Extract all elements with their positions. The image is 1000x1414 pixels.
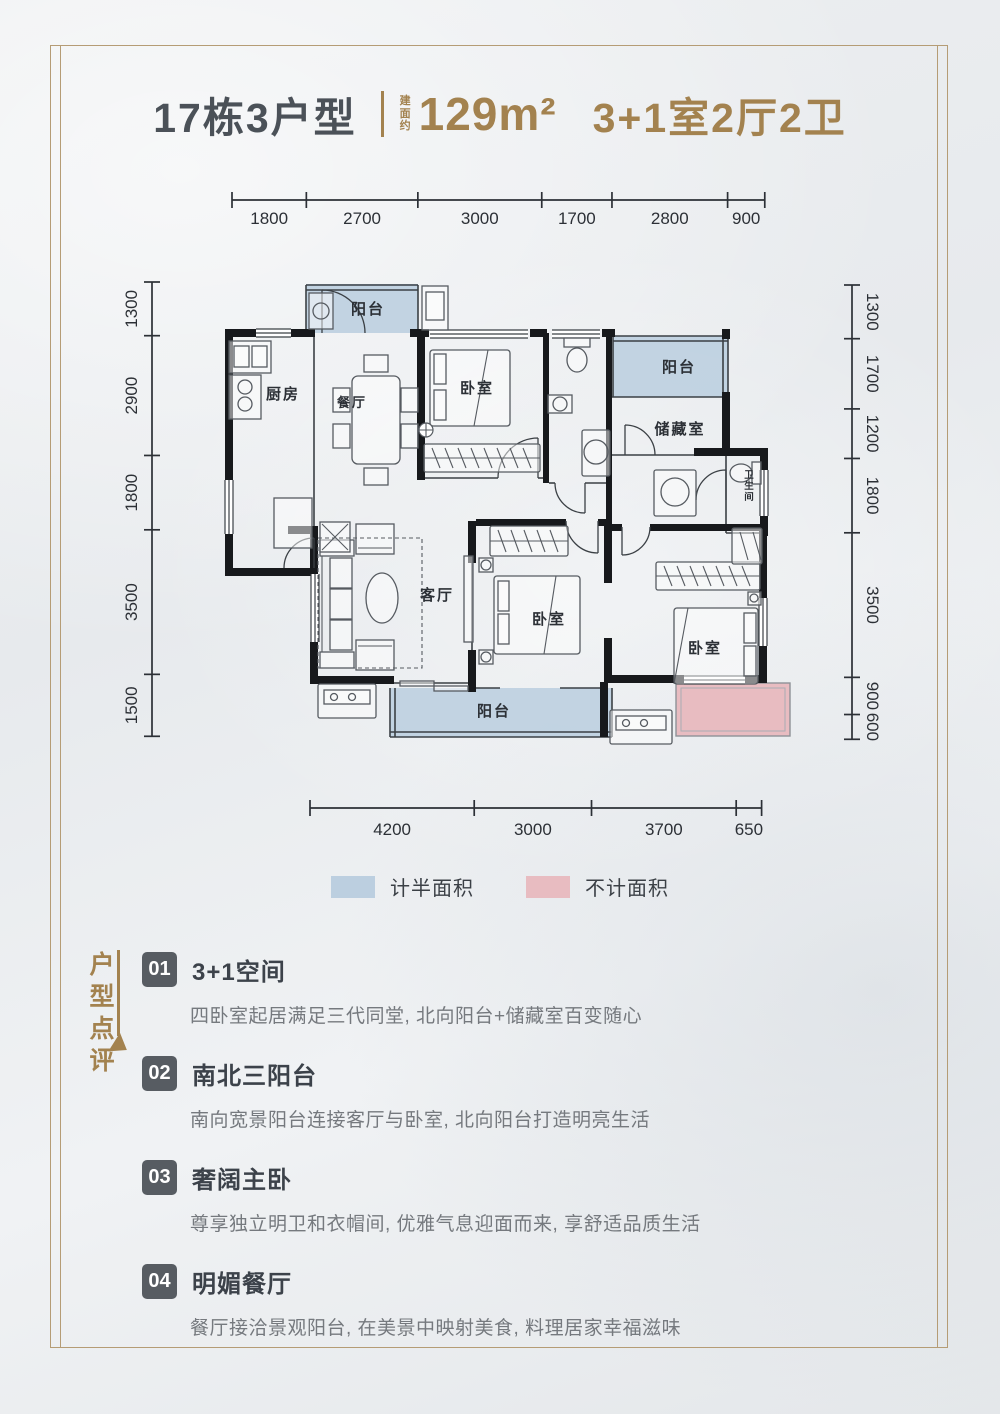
room-label-balcony_s: 阳台 (477, 702, 511, 720)
dim-label-right: 1800 (863, 477, 882, 515)
dim-label-top: 3000 (461, 209, 499, 228)
room-label-bath_e: 间 (744, 491, 754, 503)
dim-label-bottom: 650 (735, 820, 763, 839)
dim-label-right: 3500 (863, 586, 882, 624)
dim-label-top: 2700 (343, 209, 381, 228)
dim-label-right: 900 (863, 682, 882, 710)
item-title: 明媚餐厅 (192, 1264, 292, 1299)
title-bar: 17栋3户型 建面约 129m² 3+1室2厅2卫 (0, 84, 1000, 144)
dim-label-left: 1500 (122, 686, 141, 724)
room-label-balcony_n: 阳台 (351, 300, 385, 318)
review-item: 04 明媚餐厅 餐厅接洽景观阳台, 在美景中映射美食, 料理居家幸福滋味 (142, 1263, 862, 1340)
excluded-area-label: 不计面积 (585, 872, 669, 901)
room-label-living: 客厅 (419, 586, 454, 604)
item-title: 奢阔主卧 (192, 1160, 292, 1195)
floor-plan: 阳台厨房餐厅卧室阳台储藏室卫生间客厅卧室卧室阳台1800270030001700… (0, 170, 1000, 860)
area-value: 129m² (419, 87, 557, 141)
dim-label-left: 3500 (122, 583, 141, 621)
review-item: 03 奢阔主卧 尊享独立明卫和衣帽间, 优雅气息迎面而来, 享舒适品质生活 (142, 1159, 862, 1236)
dim-label-right: 600 (863, 713, 882, 741)
item-title: 南北三阳台 (192, 1056, 317, 1091)
dim-label-bottom: 3000 (514, 820, 552, 839)
dim-label-right: 1300 (863, 293, 882, 331)
title-divider (381, 91, 384, 137)
legend-item-excluded-area: 不计面积 (526, 872, 669, 901)
excluded-area-swatch (526, 876, 570, 898)
room-count: 3+1室2厅2卫 (593, 84, 847, 144)
dim-label-left: 2900 (122, 377, 141, 415)
item-number-badge: 02 (142, 1056, 177, 1091)
dim-label-bottom: 3700 (645, 820, 683, 839)
dim-label-top: 1800 (250, 209, 288, 228)
item-title: 3+1空间 (192, 952, 286, 987)
review-item: 01 3+1空间 四卧室起居满足三代同堂, 北向阳台+储藏室百变随心 (142, 951, 862, 1028)
dim-label-top: 2800 (651, 209, 689, 228)
flyer-page: 17栋3户型 建面约 129m² 3+1室2厅2卫 阳台厨房餐厅卧室阳台储藏室卫… (0, 0, 1000, 1414)
review-accent-line (117, 950, 120, 1036)
half-area-label: 计半面积 (390, 872, 474, 901)
item-description: 四卧室起居满足三代同堂, 北向阳台+储藏室百变随心 (190, 1001, 862, 1028)
dim-label-top: 1700 (558, 209, 596, 228)
room-label-bedroom_m: 卧室 (688, 639, 722, 657)
room-label-bedroom_s: 卧室 (532, 610, 566, 628)
room-label-bedroom_n: 卧室 (460, 379, 494, 397)
dim-label-bottom: 4200 (373, 820, 411, 839)
review-section-title: 户型点评 (82, 951, 118, 1079)
item-description: 餐厅接洽景观阳台, 在美景中映射美食, 料理居家幸福滋味 (190, 1313, 862, 1340)
unit-title: 17栋3户型 (153, 84, 356, 144)
dim-label-top: 900 (732, 209, 760, 228)
excluded-area-zone (676, 683, 790, 736)
item-number-badge: 03 (142, 1160, 177, 1195)
item-number-badge: 01 (142, 952, 177, 987)
room-label-storage: 储藏室 (654, 420, 705, 438)
room-label-bath_e: 卫 (744, 470, 754, 481)
dim-label-right: 1200 (863, 415, 882, 453)
room-label-balcony_ne: 阳台 (662, 358, 696, 376)
item-description: 尊享独立明卫和衣帽间, 优雅气息迎面而来, 享舒适品质生活 (190, 1209, 862, 1236)
legend: 计半面积 不计面积 (0, 872, 1000, 901)
dim-label-left: 1800 (122, 474, 141, 512)
half-area-swatch (331, 876, 375, 898)
item-number-badge: 04 (142, 1264, 177, 1299)
area-note: 建面约 (400, 95, 414, 133)
dim-label-right: 1700 (863, 355, 882, 393)
item-description: 南向宽景阳台连接客厅与卧室, 北向阳台打造明亮生活 (190, 1105, 862, 1132)
review-list: 01 3+1空间 四卧室起居满足三代同堂, 北向阳台+储藏室百变随心 02 南北… (142, 951, 862, 1367)
room-label-bath_e: 生 (744, 480, 754, 492)
dim-label-left: 1300 (122, 290, 141, 328)
legend-item-half-area: 计半面积 (331, 872, 474, 901)
room-label-dining: 餐厅 (336, 395, 367, 410)
review-item: 02 南北三阳台 南向宽景阳台连接客厅与卧室, 北向阳台打造明亮生活 (142, 1055, 862, 1132)
room-label-kitchen: 厨房 (266, 385, 300, 403)
